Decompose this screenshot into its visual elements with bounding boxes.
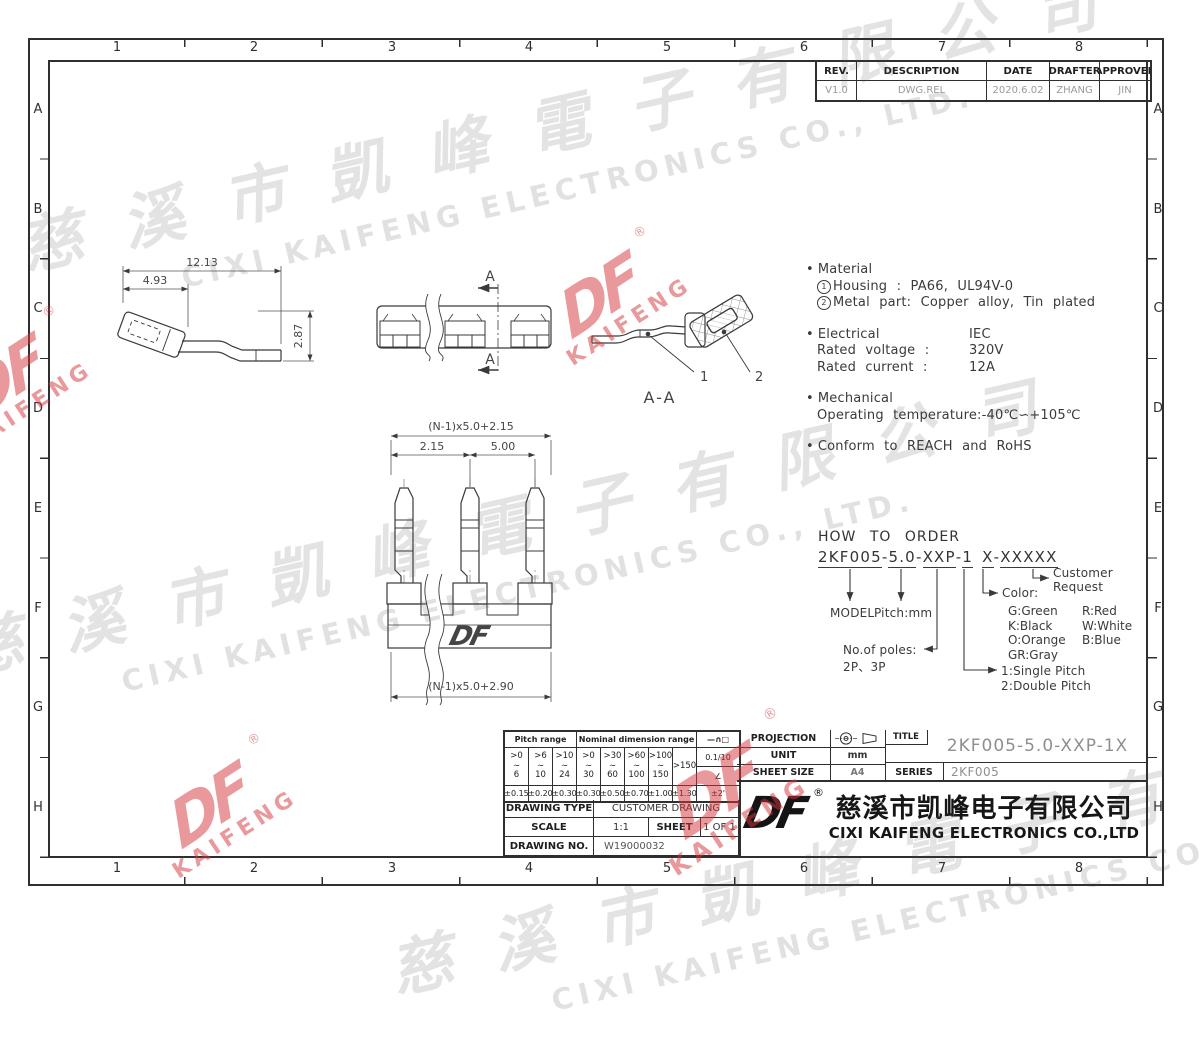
range-cell: >100∼150	[649, 748, 673, 786]
range-hi: 10	[535, 771, 546, 781]
tolerance-value: ±0.20	[529, 786, 553, 801]
company-name-en: CIXI KAIFENG ELECTRONICS CO.,LTD	[823, 824, 1145, 842]
grid-row-label: B	[1148, 202, 1168, 218]
pitch-range-header: Pitch range	[505, 732, 577, 748]
company-block: DF ® 慈溪市凯峰电子有限公司 CIXI KAIFENG ELECTRONIC…	[737, 780, 1148, 860]
scale-value: 1:1	[594, 818, 649, 837]
grid-col-label: 2	[234, 861, 274, 879]
how-to-order-title: HOW TO ORDER	[818, 529, 960, 545]
tolerance-value: ±0.30	[553, 786, 577, 801]
grid-col-label: 8	[1059, 40, 1099, 58]
note-current: Rated current :12A	[806, 360, 1166, 377]
tolerance-table: Pitch range Nominal dimension range —∩□ …	[503, 730, 741, 803]
grid-row-label: H	[1148, 800, 1168, 816]
unit-label: UNIT	[737, 747, 831, 765]
range-cell: >150	[673, 748, 697, 786]
grid-row-label: B	[28, 202, 48, 218]
view-housing-top: A A	[377, 269, 551, 372]
bullet-icon: •	[806, 327, 814, 342]
range-hi: 100	[628, 771, 644, 781]
note-standard: IEC	[969, 327, 991, 344]
circled-1-icon: 1	[817, 280, 831, 294]
note-text: Housing : PA66, UL94V-0	[833, 279, 1013, 294]
rev-header: DATE	[987, 62, 1050, 81]
tolerance-value: ±1.30	[673, 786, 697, 801]
tolerance-value: ±0.50	[601, 786, 625, 801]
rev-description: DWG.REL	[857, 81, 987, 100]
angle-tolerance-value: ±2'	[697, 786, 739, 801]
grid-ticks-right	[1148, 60, 1157, 858]
range-cell: >10∼24	[553, 748, 577, 786]
range-cell: >6∼10	[529, 748, 553, 786]
grid-row-label: D	[28, 401, 48, 417]
grid-col-label: 3	[372, 40, 412, 58]
grid-col-label: 5	[647, 40, 687, 58]
order-customer-label-1: Customer	[1053, 566, 1113, 580]
section-view-label: A-A	[644, 388, 677, 407]
range-hi: 24	[559, 771, 570, 781]
grid-col-label: 4	[509, 861, 549, 879]
title-label: TITLE	[885, 730, 928, 745]
sheet-value: 1 OF 1	[701, 818, 739, 837]
scale-label: SCALE	[505, 818, 594, 837]
range-cell: >0∼30	[577, 748, 601, 786]
grid-row-label: H	[28, 800, 48, 816]
order-seg-poles: XXP	[923, 548, 956, 568]
bullet-icon: •	[806, 391, 814, 406]
section-arrow-label-top: A	[485, 269, 495, 285]
range-cell: >60∼100	[625, 748, 649, 786]
grid-col-label: 2	[234, 40, 274, 58]
grid-row-label: E	[28, 501, 48, 517]
projection-symbol-icon	[830, 730, 886, 748]
note-material-2: 2Metal part: Copper alloy, Tin plated	[806, 295, 1166, 312]
range-lo: >150	[673, 762, 696, 772]
grid-col-label: 1	[97, 40, 137, 58]
unit-value: mm	[830, 747, 886, 765]
part-label-1: 1	[700, 370, 708, 385]
dim-front-top: (N-1)x5.0+2.15	[428, 420, 514, 433]
color-option: K:Black	[1008, 619, 1082, 634]
grid-row-label: G	[1148, 700, 1168, 716]
grid-col-label: 4	[509, 40, 549, 58]
section-arrow-label-bottom: A	[485, 352, 495, 368]
projection-label: PROJECTION	[737, 730, 831, 748]
order-single-pitch-label: 1:Single Pitch	[1001, 664, 1085, 678]
drawing-type-label: DRAWING TYPE	[505, 800, 594, 818]
order-code: 2KF005-5.0-XXP-1X-XXXXX	[818, 548, 1058, 568]
spec-notes: •Material 1Housing : PA66, UL94V-0 2Meta…	[806, 262, 1166, 456]
order-seg-dash: -	[994, 548, 1001, 566]
bullet-icon: •	[806, 439, 814, 454]
tolerance-value: ±0.30	[577, 786, 601, 801]
note-gap	[806, 376, 1166, 391]
tolerance-value: ±0.70	[625, 786, 649, 801]
note-material-title: •Material	[806, 262, 1166, 279]
tolerance-value: ±0.15	[505, 786, 529, 801]
note-mechanical-title: •Mechanical	[806, 391, 1166, 408]
angle-tolerance-icon: ∠	[697, 767, 739, 786]
view-section-aa: 1 2 A-A	[592, 293, 763, 407]
sheet-size-label: SHEET SIZE	[737, 764, 831, 780]
note-text: Electrical	[818, 327, 880, 342]
note-value: 12A	[969, 360, 995, 377]
range-hi: 6	[514, 771, 519, 781]
df-logo-on-part: DF	[446, 621, 493, 652]
color-option: B:Blue	[1082, 633, 1162, 648]
grid-ticks-left	[40, 60, 49, 858]
range-cell: >30∼60	[601, 748, 625, 786]
rev-approver: JIN	[1100, 81, 1150, 100]
note-material-1: 1Housing : PA66, UL94V-0	[806, 279, 1166, 296]
color-option: O:Orange	[1008, 633, 1082, 648]
range-hi: 150	[652, 771, 668, 781]
dim-side-overall: 12.13	[186, 256, 218, 269]
order-poles-value: 2P、3P	[843, 658, 886, 675]
dim-front-bottom: (N-1)x5.0+2.90	[428, 680, 514, 693]
grid-col-label: 5	[647, 861, 687, 879]
drawing-no-label: DRAWING NO.	[505, 837, 594, 855]
range-hi: 60	[607, 771, 618, 781]
series-label: SERIES	[885, 763, 944, 781]
range-hi: 30	[583, 771, 594, 781]
note-text: Conform to REACH and RoHS	[818, 439, 1032, 454]
title-value: 2KF005-5.0-XXP-1X	[927, 732, 1148, 760]
note-text: Rated current :	[817, 360, 928, 375]
drawing-sheet: { "sheet": { "columns": ["1","2","3","4"…	[0, 0, 1200, 910]
revision-table: REV. DESCRIPTION DATE DRAFTER APPROVER V…	[815, 60, 1152, 102]
flatness-tolerance: 0.1/10	[697, 748, 739, 767]
order-seg-pitchtype: 1	[962, 548, 973, 568]
series-value: 2KF005	[951, 763, 999, 781]
grid-col-label: 7	[922, 861, 962, 879]
grid-col-label: 6	[784, 40, 824, 58]
grid-row-label: A	[1148, 102, 1168, 118]
rev-version: V1.0	[817, 81, 857, 100]
grid-col-label: 6	[784, 861, 824, 879]
grid-row-label: F	[28, 601, 48, 617]
tolerance-symbols-icon: —∩□	[697, 732, 739, 748]
order-color-options: G:Green R:Red K:Black W:White O:Orange B…	[1008, 604, 1162, 662]
order-seg-dash: -	[916, 548, 923, 566]
nominal-range-header: Nominal dimension range	[577, 732, 697, 748]
order-seg-model: 2KF005	[818, 548, 882, 568]
note-text: Operating temperature:-40℃∽+105℃	[817, 408, 1081, 423]
order-color-label: Color:	[1002, 586, 1038, 600]
sheet-size-value: A4	[830, 764, 886, 780]
note-temperature: Operating temperature:-40℃∽+105℃	[806, 408, 1166, 425]
grid-col-label: 1	[97, 861, 137, 879]
grid-row-label: C	[28, 301, 48, 317]
color-option: G:Green	[1008, 604, 1082, 619]
tolerance-value: ±1.00	[649, 786, 673, 801]
range-cell: >0∼6	[505, 748, 529, 786]
note-electrical-title: •ElectricalIEC	[806, 327, 1166, 344]
order-seg-custom: XXXXX	[1000, 548, 1057, 568]
rev-drafter: ZHANG	[1050, 81, 1100, 100]
company-name-cn: 慈溪市凯峰电子有限公司	[823, 788, 1145, 825]
note-voltage: Rated voltage :320V	[806, 343, 1166, 360]
order-customer-label-2: Request	[1053, 580, 1103, 594]
note-value: 320V	[969, 343, 1004, 360]
title-block: PROJECTION UNIT mm SHEET SIZE A4 TITLE 2…	[737, 730, 1148, 780]
order-poles-label: No.of poles:	[843, 643, 917, 657]
grid-ticks-bottom	[48, 877, 1148, 886]
order-seg-dash: -	[956, 548, 963, 566]
rev-header: DESCRIPTION	[857, 62, 987, 81]
rev-date: 2020.6.02	[987, 81, 1050, 100]
view-front: DF (N-1)x5.0+2.15 2.15 5.00 (N-1)x5.0+2.…	[387, 420, 552, 705]
grid-row-label: A	[28, 102, 48, 118]
note-gap	[806, 312, 1166, 327]
order-seg-pitch: 5.0	[888, 548, 915, 568]
note-text: Material	[818, 262, 872, 277]
rev-header: APPROVER	[1100, 62, 1150, 81]
grid-col-label: 7	[922, 40, 962, 58]
grid-ticks-top	[48, 38, 1148, 47]
order-double-pitch-label: 2:Double Pitch	[1001, 679, 1091, 693]
series-row: SERIES 2KF005	[885, 762, 1148, 781]
bullet-icon: •	[806, 262, 814, 277]
rev-header: REV.	[817, 62, 857, 81]
note-text: Metal part: Copper alloy, Tin plated	[833, 295, 1095, 310]
view-terminal-side: 12.13 4.93 2.87	[117, 256, 314, 361]
circled-2-icon: 2	[817, 296, 831, 310]
drawing-info-table: DRAWING TYPE CUSTOMER DRAWING SCALE 1:1 …	[503, 800, 741, 857]
title-area: TITLE 2KF005-5.0-XXP-1X SERIES 2KF005	[885, 730, 1148, 780]
grid-col-label: 8	[1059, 861, 1099, 879]
order-pitch-label: Pitch:mm	[874, 606, 932, 620]
rev-header: DRAFTER	[1050, 62, 1100, 81]
drawing-type-value: CUSTOMER DRAWING	[594, 800, 739, 818]
grid-row-label: E	[1148, 501, 1168, 517]
df-logo-icon: DF	[740, 788, 809, 839]
color-option: R:Red	[1082, 604, 1162, 619]
sheet-label: SHEET	[649, 818, 701, 837]
part-label-2: 2	[755, 370, 763, 385]
dim-side-head: 4.93	[143, 274, 168, 287]
dim-side-height: 2.87	[292, 324, 305, 349]
note-conform: •Conform to REACH and RoHS	[806, 439, 1166, 456]
note-text: Rated voltage :	[817, 343, 929, 358]
grid-col-label: 3	[372, 861, 412, 879]
drawing-no-value: W19000032	[594, 837, 739, 855]
grid-row-label: G	[28, 700, 48, 716]
note-text: Mechanical	[818, 391, 893, 406]
color-option: W:White	[1082, 619, 1162, 634]
color-option: GR:Gray	[1008, 648, 1082, 663]
order-seg-dash: -	[882, 548, 889, 566]
dim-front-pitch-a: 2.15	[420, 440, 445, 453]
note-gap	[806, 424, 1166, 439]
order-model-label: MODEL	[830, 606, 874, 620]
dim-front-pitch-b: 5.00	[491, 440, 516, 453]
order-seg-color: X	[982, 548, 993, 568]
